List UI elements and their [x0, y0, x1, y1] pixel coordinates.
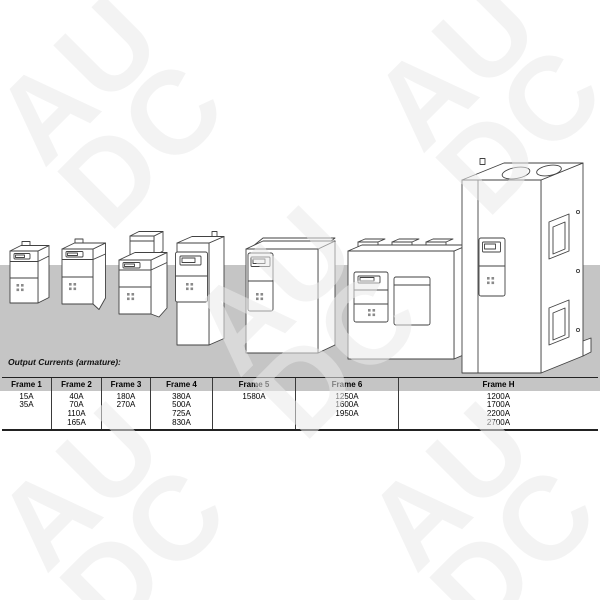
frame-column: Frame H1200A1700A2200A2700A — [398, 378, 598, 429]
frame-column-header: Frame 2 — [52, 378, 101, 391]
frame-column: Frame 3180A270A — [101, 378, 150, 429]
current-value: 1580A — [213, 393, 295, 402]
frame-h-drive-illustration — [462, 159, 591, 374]
frame-column-values: 40A70A110A165A — [52, 391, 101, 429]
current-value: 830A — [151, 419, 212, 428]
frame-6-drive-illustration — [348, 239, 473, 359]
frame-column-values: 1250A1600A1950A — [296, 391, 398, 429]
frame-column-values: 15A35A — [2, 391, 51, 429]
frame-column: Frame 115A35A — [2, 378, 51, 429]
output-currents-section-label: Output Currents (armature): — [8, 357, 121, 367]
output-currents-table: Frame 115A35AFrame 240A70A110A165AFrame … — [2, 377, 598, 431]
frame-1-drive-illustration — [10, 242, 49, 304]
frame-column: Frame 61250A1600A1950A — [295, 378, 398, 429]
current-value: 270A — [102, 401, 150, 410]
frame-column-header: Frame 3 — [102, 378, 150, 391]
frame-column-header: Frame 5 — [213, 378, 295, 391]
frame-column-values: 380A500A725A830A — [151, 391, 212, 429]
frame-5-drive-illustration — [246, 238, 335, 353]
frame-4-drive-illustration — [176, 232, 225, 346]
drive-illustrations — [0, 0, 600, 600]
frame-column-header: Frame 1 — [2, 378, 51, 391]
frame-column: Frame 51580A — [212, 378, 295, 429]
frame-3-drive-illustration — [119, 232, 167, 318]
frame-column: Frame 240A70A110A165A — [51, 378, 101, 429]
current-value: 35A — [2, 401, 51, 410]
drive-size-catalog-page: Output Currents (armature): Frame 115A35… — [0, 0, 600, 600]
frame-column-header: Frame 4 — [151, 378, 212, 391]
frame-column-header: Frame 6 — [296, 378, 398, 391]
frame-column: Frame 4380A500A725A830A — [150, 378, 212, 429]
frame-column-values: 1200A1700A2200A2700A — [399, 391, 598, 429]
frame-2-drive-illustration — [62, 239, 106, 310]
frame-column-header: Frame H — [399, 378, 598, 391]
current-value: 1950A — [296, 410, 398, 419]
frame-column-values: 1580A — [213, 391, 295, 429]
frame-column-values: 180A270A — [102, 391, 150, 429]
current-value: 2700A — [399, 419, 598, 428]
current-value: 165A — [52, 419, 101, 428]
